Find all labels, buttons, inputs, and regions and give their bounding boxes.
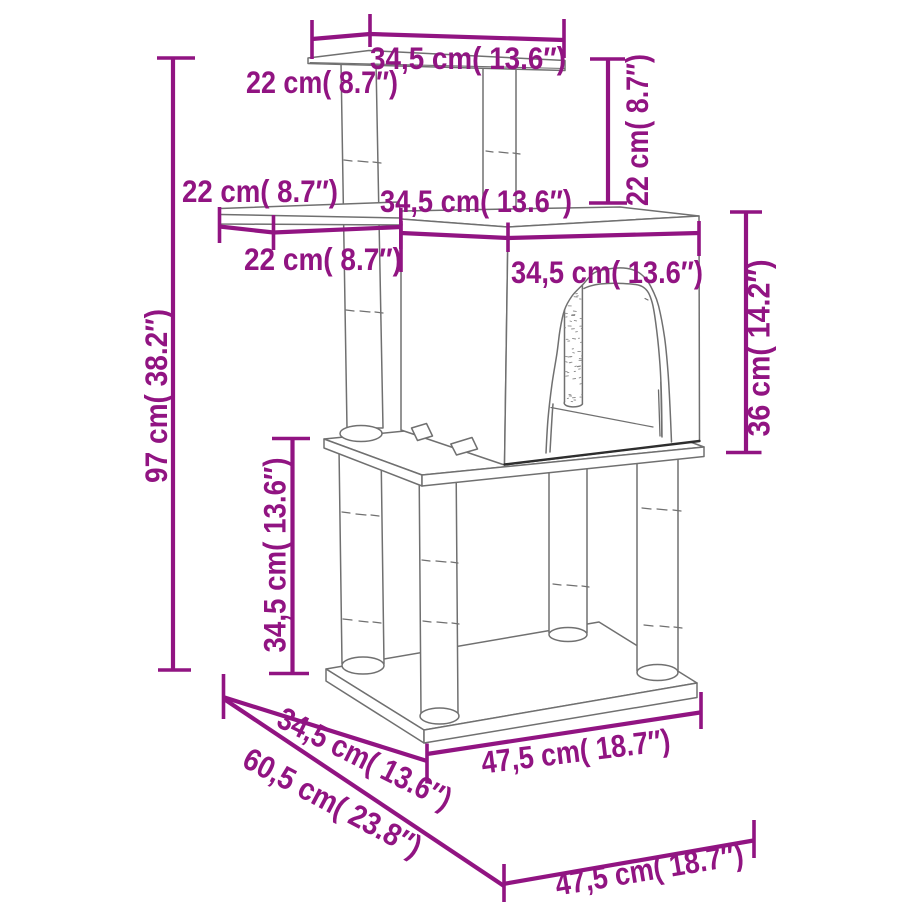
svg-text:22 cm( 8.7″): 22 cm( 8.7″) bbox=[619, 54, 655, 206]
svg-text:34,5 cm( 13.6″): 34,5 cm( 13.6″) bbox=[370, 40, 566, 76]
svg-text:22 cm( 8.7″): 22 cm( 8.7″) bbox=[244, 241, 402, 277]
svg-text:97 cm( 38.2″): 97 cm( 38.2″) bbox=[138, 309, 174, 483]
svg-text:36 cm( 14.2″): 36 cm( 14.2″) bbox=[741, 260, 777, 437]
svg-text:22 cm( 8.7″): 22 cm( 8.7″) bbox=[182, 173, 338, 209]
svg-text:22 cm( 8.7″): 22 cm( 8.7″) bbox=[246, 64, 398, 100]
svg-text:34,5 cm( 13.6″): 34,5 cm( 13.6″) bbox=[257, 458, 293, 653]
svg-text:34,5 cm( 13.6″): 34,5 cm( 13.6″) bbox=[511, 254, 703, 290]
svg-text:34,5 cm( 13.6″): 34,5 cm( 13.6″) bbox=[380, 183, 572, 219]
